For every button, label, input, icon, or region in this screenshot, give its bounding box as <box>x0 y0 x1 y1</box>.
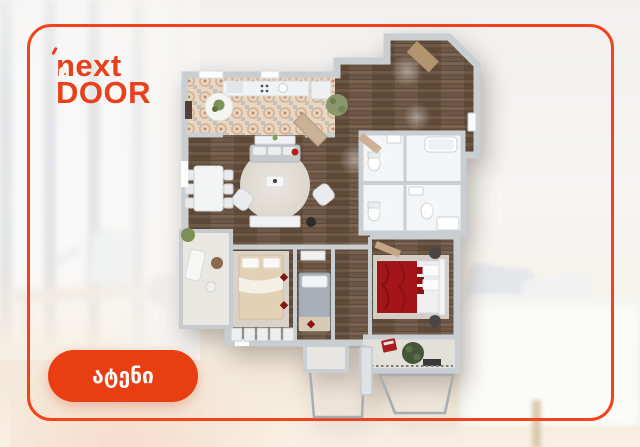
balcony-left <box>181 228 231 327</box>
location-badge[interactable]: ატენი <box>48 350 198 402</box>
tv-cabinet <box>250 216 300 227</box>
room-kitchen <box>185 71 335 146</box>
room-bathrooms <box>358 133 463 233</box>
plant <box>326 94 348 116</box>
dining-table <box>194 166 223 211</box>
promo-card: next DOOR ატენი <box>0 0 640 447</box>
plant <box>402 342 424 364</box>
wardrobe-row <box>231 328 294 341</box>
brand-logo: next DOOR <box>56 52 151 106</box>
terrace-right <box>363 337 457 368</box>
brand-logo-line2: DOOR <box>56 79 151 106</box>
floor-plan-3d <box>165 25 485 420</box>
